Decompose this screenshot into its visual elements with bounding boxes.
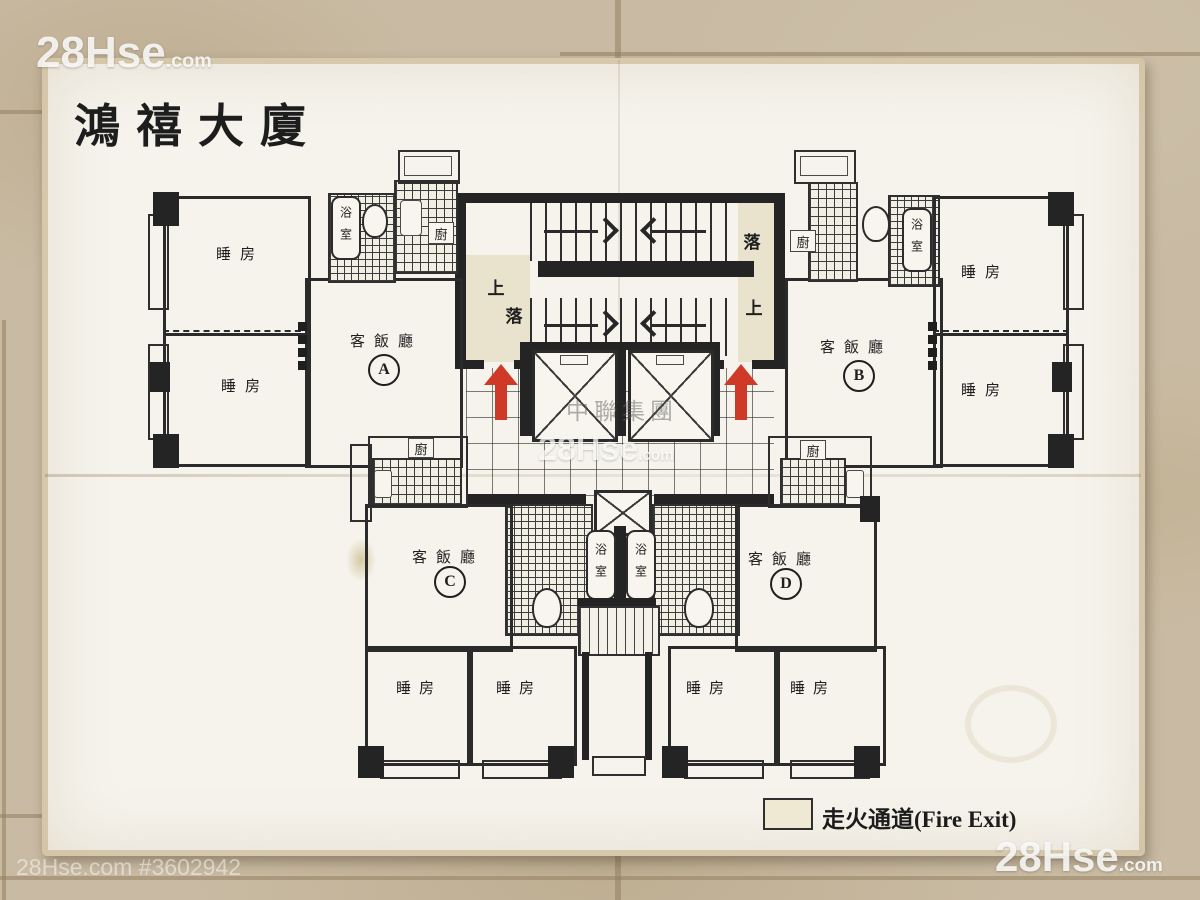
column-block (1052, 362, 1072, 392)
unit-a-bathtub: 浴室 (331, 196, 361, 260)
unit-c-bedroom-label: 睡房 (488, 678, 550, 696)
unit-a-roof-bay-inner (404, 156, 452, 176)
legend-fire-exit-swatch (763, 798, 813, 830)
column-block (153, 192, 179, 226)
wall (654, 494, 774, 504)
watermark-brand: 28Hse (538, 430, 638, 468)
column-block (1048, 192, 1074, 226)
wall (520, 342, 532, 436)
unit-d-toilet (684, 588, 714, 628)
wall (455, 193, 785, 203)
unit-c-letter: C (434, 566, 466, 598)
unit-d-letter: D (770, 568, 802, 600)
column-block (854, 746, 880, 778)
unit-d-kitchen-tiles (780, 458, 846, 506)
stair-handrail (544, 230, 598, 233)
watermark-28hse-center: 28Hse.com (538, 430, 674, 469)
unit-c-bedroom-label: 睡房 (388, 678, 450, 696)
column-block (548, 746, 574, 778)
wall-dash (928, 322, 937, 331)
watermark-brand: 28Hse (995, 833, 1119, 880)
wall-dash (928, 348, 937, 357)
light-well (578, 606, 660, 656)
unit-d-kitchen-sink (846, 470, 864, 498)
photo-of-floor-plan: 上 落 落 上 浴室 廚 睡房 睡房 客飯廳 A 廚 浴室 (0, 0, 1200, 900)
wall (774, 193, 785, 369)
unit-c-balcony (380, 760, 460, 779)
stair-up-label: 上 (486, 276, 506, 296)
wall (582, 652, 589, 760)
unit-b-toilet (862, 206, 890, 242)
tile-grout-horizontal (0, 814, 44, 818)
wall (645, 652, 652, 760)
stair-down-label: 落 (742, 230, 762, 250)
unit-c-kitchen-sink (374, 470, 392, 498)
wall-dash (298, 322, 307, 331)
watermark-brand-suffix: .com (638, 447, 674, 464)
tile-grout-vertical (2, 320, 6, 900)
unit-a-kitchen-sink (400, 200, 422, 236)
unit-b-bathtub: 浴室 (902, 208, 932, 272)
unit-c-living-label: 客飯廳 (398, 546, 498, 566)
unit-b-bedroom-label: 睡房 (950, 262, 1020, 280)
unit-a-bedroom-label: 睡房 (210, 376, 280, 394)
wall (466, 494, 586, 504)
arrow-head (724, 364, 758, 385)
arrow-shaft (735, 385, 747, 420)
wall (466, 360, 484, 369)
unit-b-bay-window (1063, 344, 1084, 440)
column-block (358, 746, 384, 778)
watermark-agency: 中聯集團 (566, 392, 678, 426)
center-bay (592, 756, 646, 776)
stair-up-label: 上 (744, 296, 764, 316)
lift-door (560, 355, 588, 365)
unit-b-kitchen-label: 廚 (790, 230, 816, 252)
unit-c-kitchen-label: 廚 (408, 438, 434, 458)
paper-fold-crease (618, 60, 620, 320)
wall-dash (298, 348, 307, 357)
unit-b-bedroom-label: 睡房 (950, 380, 1020, 398)
column-block (662, 746, 688, 778)
watermark-brand: 28Hse (36, 28, 166, 77)
unit-d-kitchen-label: 廚 (800, 440, 826, 460)
unit-b-living-label: 客飯廳 (806, 336, 906, 356)
unit-a-kitchen-label: 廚 (428, 222, 454, 244)
unit-b-bay-window (1063, 214, 1084, 310)
unit-d-bedroom-label: 睡房 (678, 678, 740, 696)
tile-grout-horizontal (560, 52, 1200, 56)
unit-a-bedroom-1 (163, 196, 311, 336)
unit-a-living-label: 客飯廳 (336, 330, 436, 350)
wall-dash (928, 361, 937, 370)
stair-handrail (544, 324, 598, 327)
column-block (150, 362, 170, 392)
unit-d-living-room (735, 504, 877, 652)
unit-a-toilet (362, 204, 388, 238)
wall-dash (298, 335, 307, 344)
tile-grout-horizontal (0, 110, 46, 114)
watermark-brand-suffix: .com (1119, 855, 1163, 876)
unit-a-bay-window (148, 214, 169, 310)
unit-d-bedroom-label: 睡房 (782, 678, 844, 696)
unit-b-letter: B (843, 360, 875, 392)
stair-mid-wall (538, 261, 754, 277)
lift-door (656, 355, 684, 365)
unit-a-bedroom-label: 睡房 (205, 244, 275, 262)
unit-d-balcony (684, 760, 764, 779)
unit-a-bedroom-2 (163, 330, 311, 467)
unit-d-bathtub: 浴室 (626, 530, 656, 600)
column-block (153, 434, 179, 468)
watermark-28hse-top-left: 28Hse.com (36, 28, 212, 78)
watermark-brand-suffix: .com (166, 50, 212, 72)
column-block (860, 496, 880, 522)
unit-b-roof-bay-inner (800, 156, 848, 176)
unit-a-letter: A (368, 354, 400, 386)
arrow-head (484, 364, 518, 385)
watermark-28hse-bottom-right: 28Hse.com (995, 833, 1163, 881)
fire-exit-arrow (724, 364, 758, 420)
column-block (1048, 434, 1074, 468)
wall-dash (298, 361, 307, 370)
fire-exit-arrow (484, 364, 518, 420)
wall-dash (928, 335, 937, 344)
stair-down-label: 落 (504, 304, 524, 324)
wall (578, 598, 656, 606)
unit-c-toilet (532, 588, 562, 628)
unit-d-living-label: 客飯廳 (734, 548, 834, 568)
unit-a-bay-window (148, 344, 169, 440)
building-title: 鴻禧大廈 (74, 90, 322, 156)
unit-c-bathtub: 浴室 (586, 530, 616, 600)
paper-stain-ring (965, 685, 1057, 763)
arrow-shaft (495, 385, 507, 420)
legend-fire-exit-label: 走火通道(Fire Exit) (822, 800, 1016, 834)
watermark-listing-id: 28Hse.com #3602942 (16, 854, 241, 881)
